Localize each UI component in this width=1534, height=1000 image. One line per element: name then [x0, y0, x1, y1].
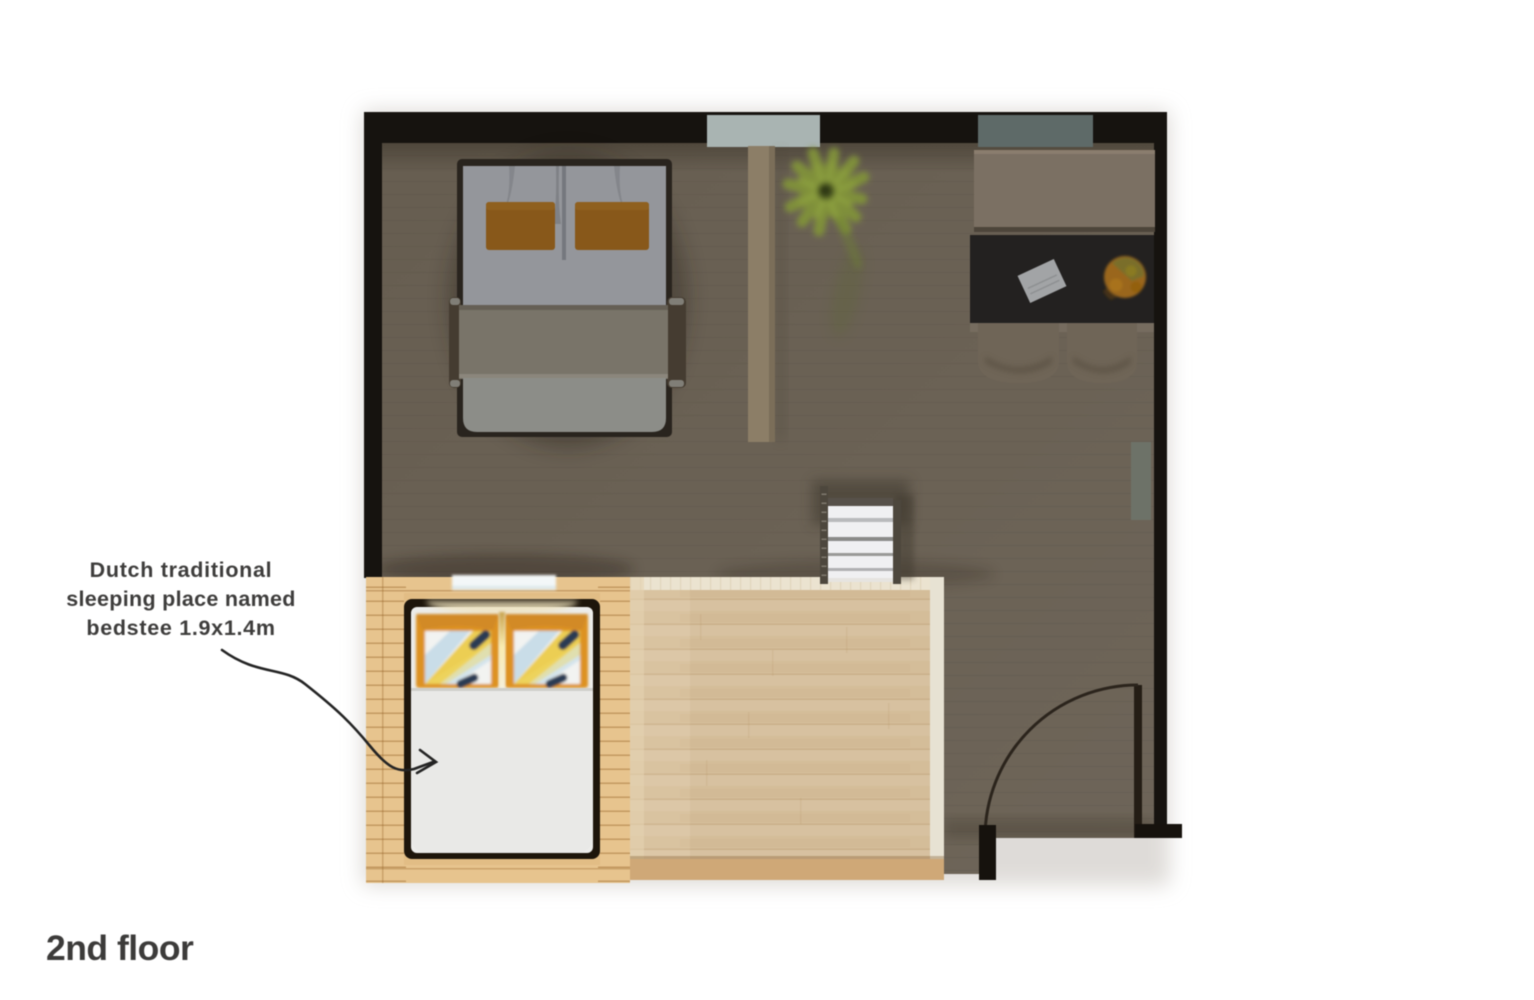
svg-text:Dutch traditional: Dutch traditional [90, 558, 273, 582]
svg-text:bedstee 1.9x1.4m: bedstee 1.9x1.4m [86, 616, 275, 640]
svg-text:sleeping place named: sleeping place named [66, 587, 295, 611]
svg-text:2nd floor: 2nd floor [46, 928, 194, 968]
